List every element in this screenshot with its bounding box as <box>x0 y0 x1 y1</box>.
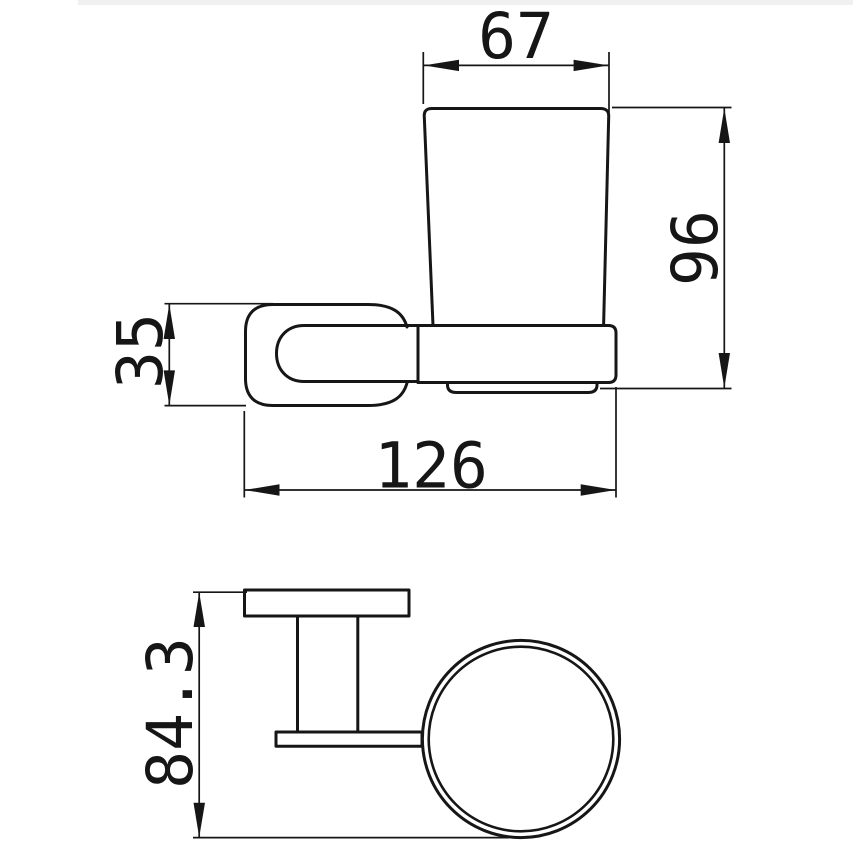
technical-drawing-page: 67 96 35 126 84.3 <box>0 0 853 853</box>
dim-35-label: 35 <box>104 313 177 389</box>
dim-126-label: 126 <box>374 430 488 503</box>
technical-drawing-canvas: 67 96 35 126 84.3 <box>0 0 853 853</box>
top-edge-shadow <box>78 0 853 5</box>
dim-67-label: 67 <box>478 0 554 73</box>
dim-96-label: 96 <box>659 210 732 286</box>
dim-84-label: 84.3 <box>134 637 207 789</box>
